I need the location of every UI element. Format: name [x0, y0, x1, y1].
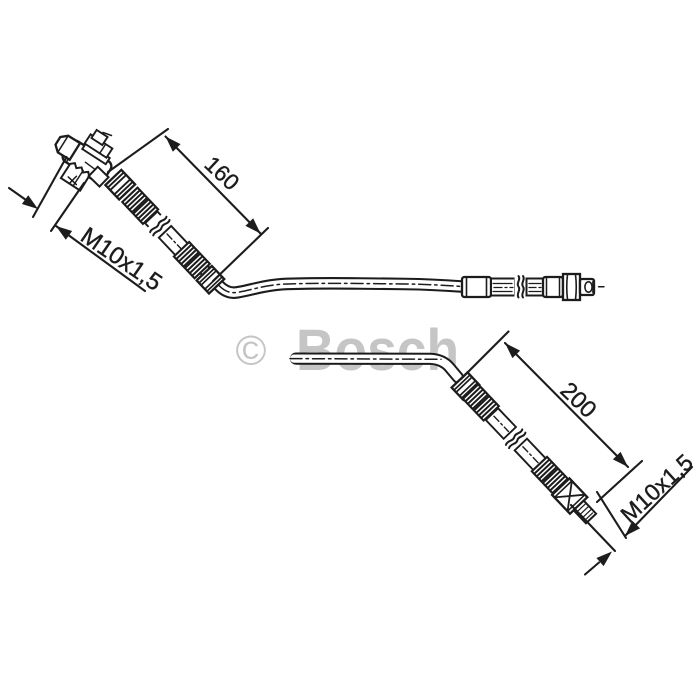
svg-text:©: ©: [236, 327, 267, 374]
svg-text:Bosch: Bosch: [296, 318, 459, 383]
